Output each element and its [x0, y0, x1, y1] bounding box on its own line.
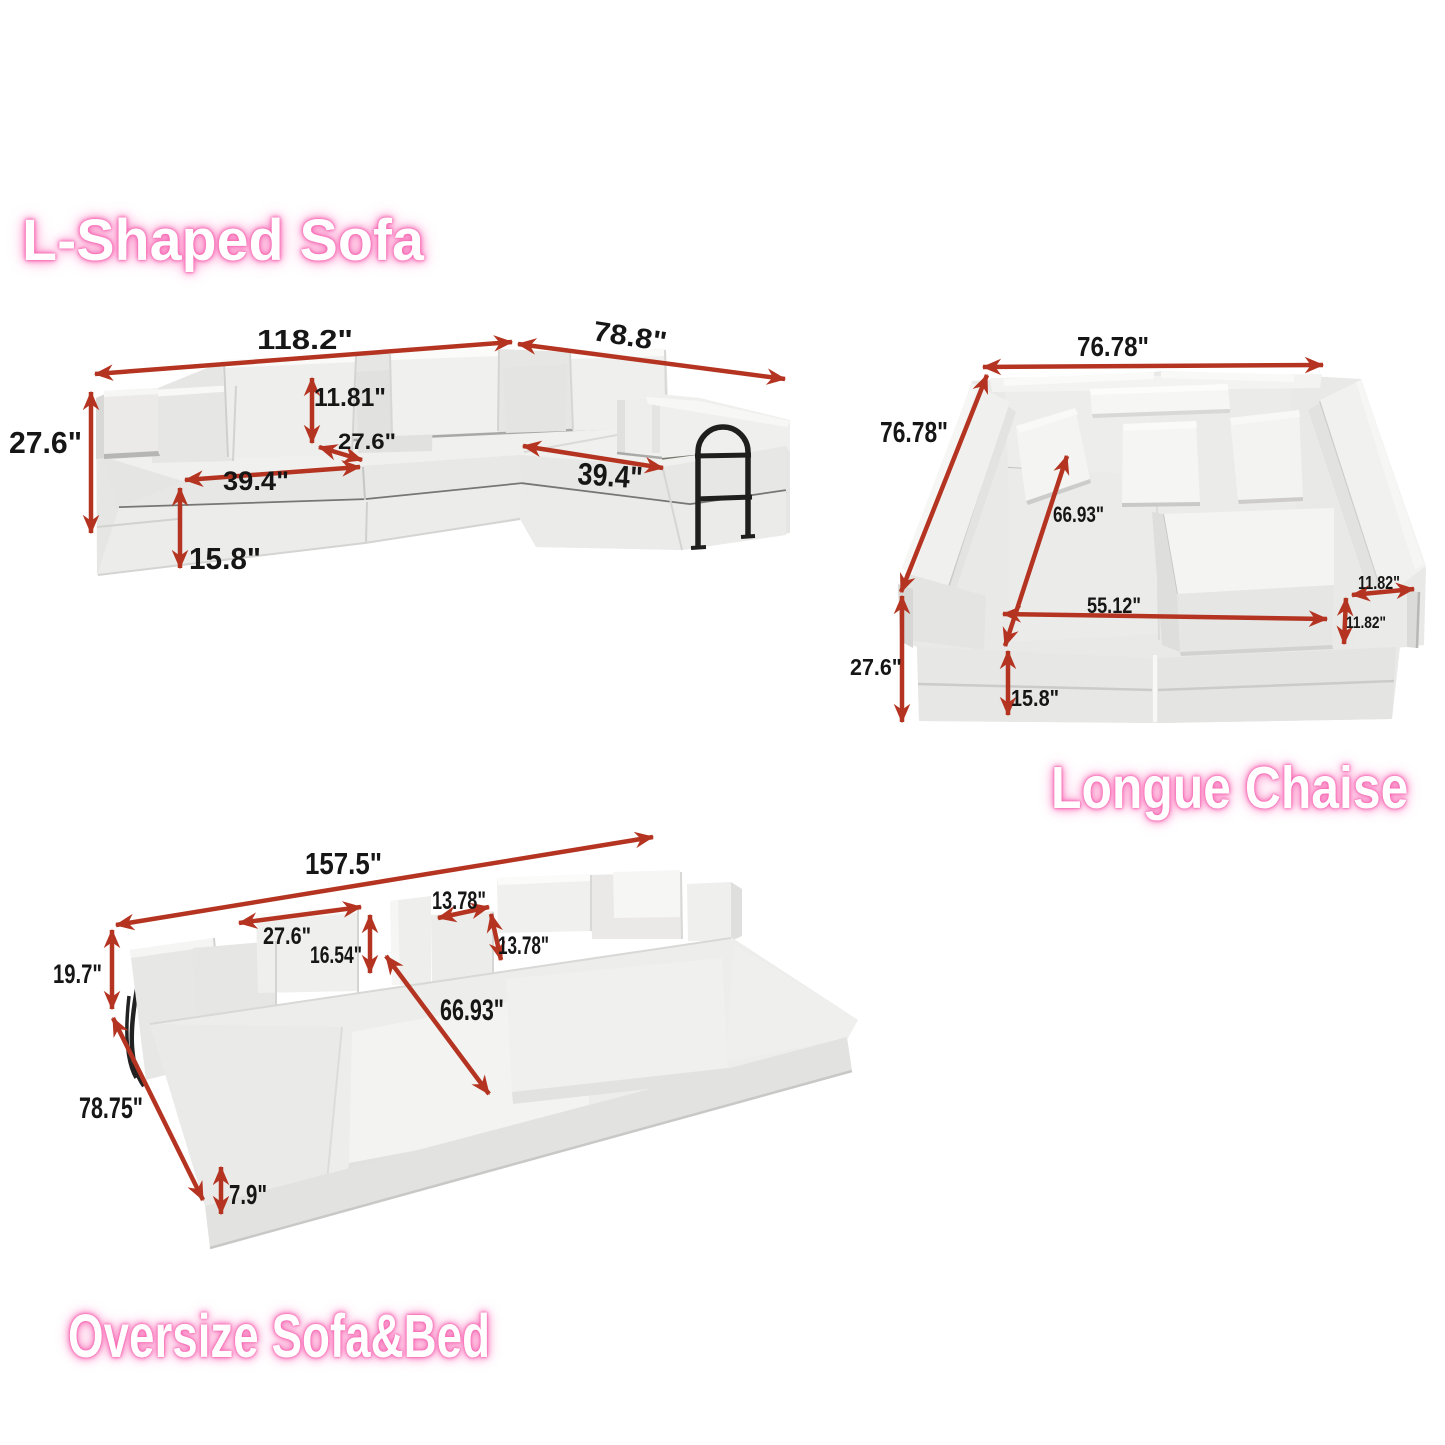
svg-text:19.7": 19.7" — [53, 959, 102, 989]
svg-text:7.9": 7.9" — [229, 1179, 267, 1210]
svg-text:118.2": 118.2" — [257, 324, 353, 355]
svg-text:11.81": 11.81" — [314, 382, 386, 412]
svg-text:27.6": 27.6" — [263, 923, 311, 950]
svg-text:39.4": 39.4" — [577, 456, 644, 495]
svg-text:27.6": 27.6" — [9, 425, 82, 460]
svg-text:15.8": 15.8" — [1011, 685, 1059, 711]
svg-text:66.93": 66.93" — [1053, 502, 1104, 527]
svg-text:13.78": 13.78" — [432, 887, 486, 915]
svg-text:13.78": 13.78" — [498, 932, 549, 960]
svg-text:27.6": 27.6" — [338, 429, 396, 454]
svg-text:16.54": 16.54" — [310, 942, 362, 969]
svg-text:78.75": 78.75" — [79, 1092, 143, 1125]
svg-text:157.5": 157.5" — [305, 846, 382, 881]
svg-text:11.82": 11.82" — [1346, 613, 1386, 632]
svg-text:39.4": 39.4" — [223, 466, 289, 496]
svg-text:76.78": 76.78" — [1077, 331, 1149, 362]
svg-text:15.8": 15.8" — [189, 541, 261, 576]
svg-text:66.93": 66.93" — [440, 994, 504, 1027]
svg-text:55.12": 55.12" — [1087, 593, 1141, 618]
svg-text:11.82": 11.82" — [1358, 573, 1400, 593]
svg-text:76.78": 76.78" — [880, 417, 948, 449]
svg-text:27.6": 27.6" — [850, 654, 902, 680]
